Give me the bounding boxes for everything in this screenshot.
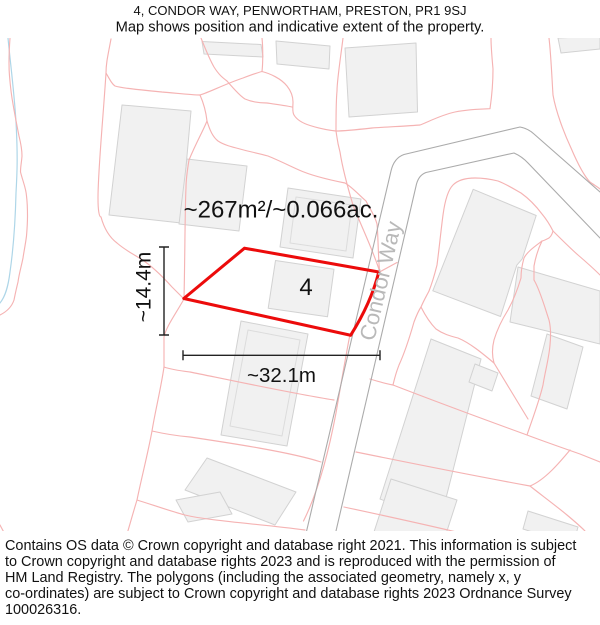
svg-text:HM Land Registry. The polygons: HM Land Registry. The polygons (includin… bbox=[5, 570, 522, 586]
svg-text:co-ordinates) are subject to C: co-ordinates) are subject to Crown copyr… bbox=[5, 586, 572, 602]
svg-text:~14.4m: ~14.4m bbox=[133, 252, 156, 323]
svg-text:4: 4 bbox=[299, 274, 312, 301]
svg-text:to Crown copyright and databas: to Crown copyright and database rights 2… bbox=[5, 554, 557, 570]
svg-text:4, CONDOR WAY, PENWORTHAM, PRE: 4, CONDOR WAY, PENWORTHAM, PRESTON, PR1 … bbox=[133, 3, 466, 18]
svg-text:100026316.: 100026316. bbox=[5, 602, 81, 618]
svg-text:~267m²/~0.066ac.: ~267m²/~0.066ac. bbox=[184, 197, 379, 224]
svg-text:Contains OS data © Crown copyr: Contains OS data © Crown copyright and d… bbox=[5, 538, 576, 554]
svg-text:Map shows position and indicat: Map shows position and indicative extent… bbox=[116, 20, 485, 36]
svg-text:~32.1m: ~32.1m bbox=[247, 364, 316, 387]
